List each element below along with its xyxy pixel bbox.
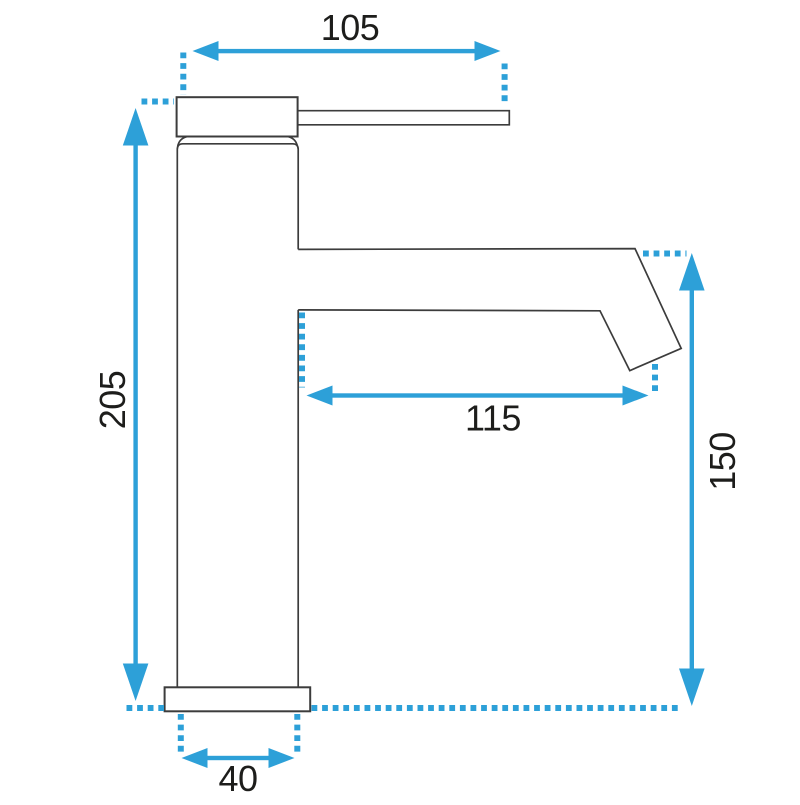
svg-text:205: 205 xyxy=(92,371,133,430)
svg-text:150: 150 xyxy=(702,432,743,491)
svg-text:115: 115 xyxy=(465,398,521,439)
svg-text:105: 105 xyxy=(321,7,380,48)
svg-text:40: 40 xyxy=(218,758,257,799)
